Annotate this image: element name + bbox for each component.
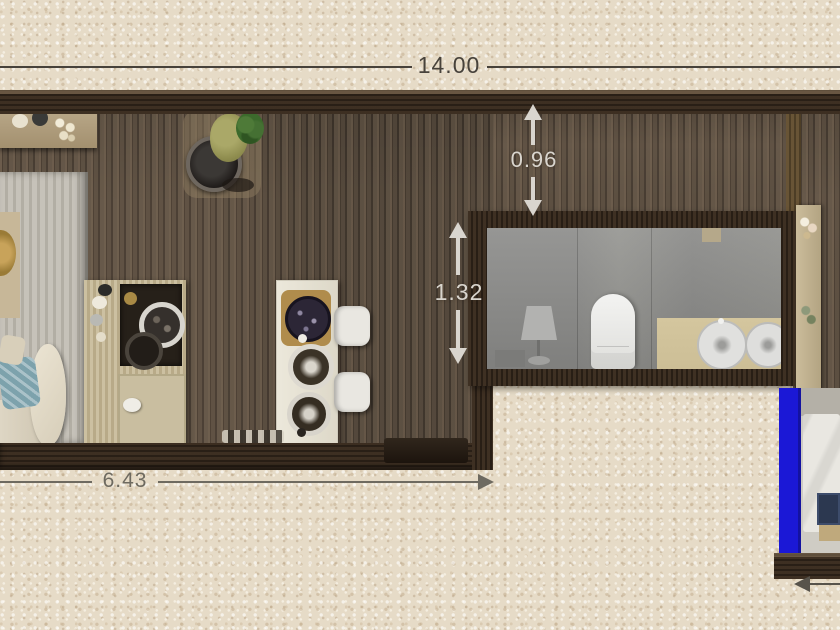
dimension-line (809, 583, 840, 585)
dimension-shaft (531, 119, 535, 145)
dinner-plate-mid (288, 344, 334, 390)
dimension-value: 6.43 (94, 468, 156, 494)
dimension-living-width: 6.43 (0, 466, 500, 496)
plant-shadow (222, 178, 254, 192)
dimension-value: 0.96 (498, 146, 570, 174)
flower-decor (52, 114, 78, 144)
sideboard-decor (222, 430, 284, 443)
dimension-total-width: 14.00 (0, 40, 840, 85)
flower-arrangement (797, 213, 819, 243)
arrow-left-icon (794, 576, 810, 592)
arrow-up-icon (449, 222, 467, 238)
door-handle (123, 398, 141, 412)
greenery-decor (797, 300, 819, 330)
floor-lamp (517, 306, 561, 368)
dinner-plate-top (285, 296, 331, 342)
arrow-right-icon (478, 474, 494, 490)
dimension-line (0, 66, 412, 68)
dimension-line (0, 481, 92, 483)
dining-chair (334, 372, 370, 412)
dimension-bedroom-width (794, 575, 840, 593)
bench (384, 438, 468, 463)
bathroom (468, 211, 800, 386)
dimension-bath-depth: 1.32 (424, 222, 494, 364)
cabinet-door (118, 374, 186, 452)
counter-decor-plate (92, 296, 107, 309)
counter-decor-small (96, 332, 106, 342)
dimension-shaft (531, 177, 535, 201)
wall-vent (702, 228, 721, 242)
gold-dish (124, 292, 137, 305)
toilet-seam (597, 346, 629, 347)
toilet (591, 294, 635, 369)
lamp-shade (521, 306, 557, 340)
bed-bench (819, 525, 840, 541)
vanity-counter (657, 318, 781, 369)
decor-bowl (12, 114, 28, 128)
coffee-table (0, 212, 20, 318)
hallway-console (796, 205, 821, 390)
bathroom-floor (487, 228, 781, 369)
sink-basin (697, 320, 747, 369)
wood-divider-column (786, 114, 801, 214)
arrow-down-icon (449, 348, 467, 364)
table-decor-gold (0, 230, 16, 276)
dimension-hall-depth: 0.96 (498, 104, 570, 219)
bedroom-area (801, 388, 840, 556)
arrow-up-icon (524, 104, 542, 120)
kitchen-counter (84, 280, 186, 452)
faucet (718, 318, 724, 324)
sink-basin (745, 322, 781, 368)
dinner-plate-bottom (287, 392, 331, 436)
floor-plan-canvas: 14.00 (0, 0, 840, 630)
lamp-base (528, 356, 550, 365)
green-plant (236, 112, 264, 144)
dimension-value: 1.32 (424, 277, 494, 307)
cooktop-panel (120, 284, 182, 366)
throw-pillow-teal (0, 356, 41, 411)
floor-seam (577, 228, 578, 369)
bed-tv-panel (817, 493, 840, 525)
dimension-shaft (456, 237, 460, 275)
dark-bowl (125, 332, 163, 370)
counter-decor-dark (98, 284, 112, 296)
small-dish (298, 334, 307, 343)
dining-set (276, 280, 372, 454)
top-wall (0, 90, 840, 114)
dimension-line (158, 481, 480, 483)
dimension-shaft (456, 310, 460, 348)
bed-headboard (801, 388, 840, 416)
small-dish-dark (297, 428, 306, 437)
dining-chair (334, 306, 370, 346)
counter-decor-silver (90, 314, 103, 326)
dimension-value: 14.00 (405, 50, 493, 80)
arrow-down-icon (524, 200, 542, 216)
dimension-line (487, 66, 840, 68)
floor-seam (651, 228, 652, 369)
highlighted-wall[interactable] (779, 388, 801, 553)
